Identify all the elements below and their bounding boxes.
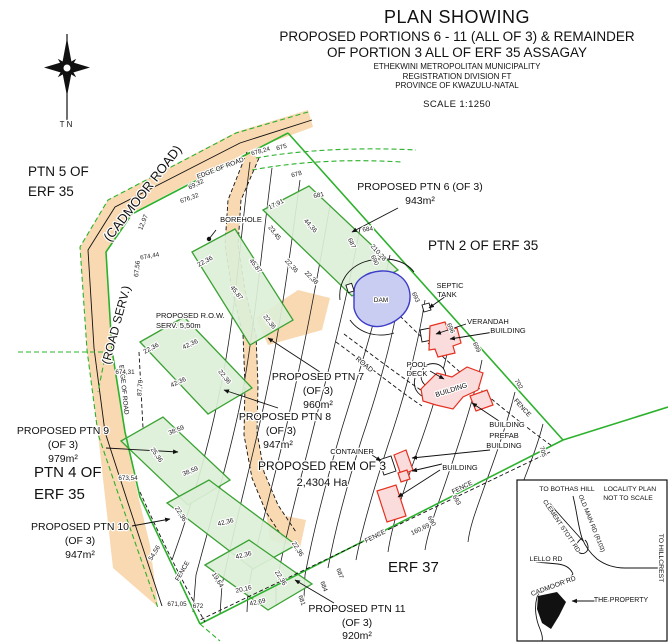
plan-title-block: PLAN SHOWING PROPOSED PORTIONS 6 - 11 (A…	[242, 6, 668, 111]
registration-line: REGISTRATION DIVISION FT	[242, 72, 668, 82]
pool-label2: DECK	[407, 369, 428, 378]
ptn10-label: PROPOSED PTN 10	[31, 521, 129, 533]
contour-label: 687	[334, 567, 344, 580]
dim-label: 160,69	[410, 522, 431, 537]
contour-label: 675	[276, 143, 288, 153]
leader-prefab	[412, 450, 490, 458]
ptn6-label: PROPOSED PTN 6 (OF 3)	[357, 181, 482, 193]
ptn6-area: 943m²	[405, 195, 435, 207]
dim-label: 22,36	[283, 258, 299, 275]
building-mid	[470, 390, 493, 411]
ptn9-label: PROPOSED PTN 9	[17, 425, 109, 437]
ptn10-of3: (OF 3)	[65, 535, 95, 547]
area-label-ptn5: PTN 5 OF	[28, 164, 89, 179]
scale-note: SCALE 1:1250	[242, 99, 668, 111]
province-line: PROVINCE OF KWAZULU-NATAL	[242, 81, 668, 91]
septic-label2: TANK	[437, 290, 456, 299]
area-label-ptn5b: ERF 35	[28, 184, 74, 199]
inset-property-label: THE PROPERTY	[594, 597, 649, 604]
building-label-right: BUILDING	[442, 463, 478, 472]
building-label-top: BUILDING	[490, 326, 526, 335]
inset-label: TO HILLCREST	[657, 534, 664, 583]
rem-area: 2,4304 Ha	[297, 477, 349, 489]
parcel-strip	[140, 317, 252, 414]
ptn7-area: 960m²	[303, 399, 333, 411]
spot-height: 674,31	[115, 369, 135, 376]
rem-label: PROPOSED REM OF 3	[258, 459, 386, 473]
prefab-label: PREFAB	[489, 431, 519, 440]
area-label-erf37: ERF 37	[388, 559, 439, 576]
ptn8-area: 947m²	[263, 439, 293, 451]
ptn8-label: PROPOSED PTN 8	[239, 411, 331, 423]
contour-label: 681	[296, 594, 306, 607]
ptn9-of3: (OF 3)	[48, 439, 78, 451]
borehole-label: BOREHOLE	[220, 215, 262, 224]
contour-label: 693	[410, 291, 421, 304]
spot-height: 671,05	[167, 601, 187, 608]
area-label-ptn4b: ERF 35	[34, 486, 85, 503]
row-serv-label: PROPOSED R.O.W.	[156, 311, 225, 320]
borehole-tick	[209, 230, 216, 239]
dim-label: 12,97	[137, 213, 150, 231]
building-label-mid: BUILDING	[489, 420, 525, 429]
ptn9-area: 979m²	[48, 453, 78, 465]
contour-label: 684	[362, 225, 374, 233]
ptn8-of3: (OF 3)	[266, 425, 296, 437]
inset-road-label: LELLO RD	[530, 556, 563, 563]
fence-label-3: FENCE	[364, 528, 387, 545]
north-arrow-hub	[63, 64, 71, 72]
north-label: T N	[60, 120, 73, 129]
plan-title: PLAN SHOWING	[242, 6, 668, 29]
contour-label: 684	[318, 580, 328, 593]
ptn11-label: PROPOSED PTN 11	[308, 603, 405, 615]
boundary-ray	[563, 407, 668, 440]
dim-label: 22,36	[290, 540, 305, 558]
spot-height: 672	[193, 603, 204, 610]
dam-label: DAM	[374, 297, 388, 304]
dim-label: 67,56	[133, 260, 142, 277]
pool-label: POOL	[407, 360, 428, 369]
septic-label: SEPTIC	[436, 281, 464, 290]
ptn7-label: PROPOSED PTN 7	[272, 371, 364, 383]
inset-label: LOCALITY PLAN	[604, 486, 656, 493]
north-arrow	[44, 34, 90, 128]
inset-label: TO BOTHAS HILL	[539, 486, 595, 493]
prefab-annex	[398, 470, 410, 482]
plan-subtitle-1: PROPOSED PORTIONS 6 - 11 (ALL OF 3) & RE…	[242, 29, 668, 46]
contour-label: 678	[291, 170, 303, 180]
boundary-dashed-ne2	[252, 161, 402, 170]
container-label: CONTAINER	[330, 447, 374, 456]
ptn7-of3: (OF 3)	[303, 385, 333, 397]
contour-label: 705	[538, 446, 548, 458]
leader-ptn7	[268, 338, 320, 372]
building-lower	[377, 485, 406, 522]
plan-subtitle-2: OF PORTION 3 ALL OF ERF 35 ASSAGAY	[242, 45, 668, 62]
boundary-dashed-s	[200, 624, 220, 641]
spot-height: 676,32	[179, 192, 200, 205]
parcel-strip	[192, 229, 293, 345]
ptn10-area: 947m²	[65, 549, 95, 561]
ptn11-area: 920m²	[342, 630, 372, 642]
prefab-label2: BUILDING	[486, 441, 522, 450]
inset-label: NOT TO SCALE	[603, 495, 653, 502]
area-label-ptn4: PTN 4 OF	[34, 464, 102, 481]
dim-label: 22,38	[303, 270, 320, 287]
dim-label: 87,79	[136, 379, 144, 396]
ptn11-of3: (OF 3)	[342, 617, 372, 629]
leader-building-right-a	[412, 464, 442, 471]
area-label-ptn2: PTN 2 OF ERF 35	[428, 238, 538, 253]
municipality-line: ETHEKWINI METROPOLITAN MUNICIPALITY	[242, 62, 668, 72]
contour-label: 693	[451, 494, 463, 507]
spot-height: 674,44	[140, 251, 161, 261]
contour-label: 702	[513, 378, 525, 391]
survey-plan-sheet: PLAN SHOWING PROPOSED PORTIONS 6 - 11 (A…	[0, 0, 668, 642]
row-serv-label2: SERV. 5,50m	[156, 321, 201, 330]
fence-label-4: FENCE	[174, 559, 191, 582]
fence-label-1: FENCE	[512, 397, 532, 419]
verandah-label: VERANDAH	[467, 317, 509, 326]
spot-height: 673,54	[118, 475, 138, 482]
contour-label: 699	[471, 341, 482, 354]
